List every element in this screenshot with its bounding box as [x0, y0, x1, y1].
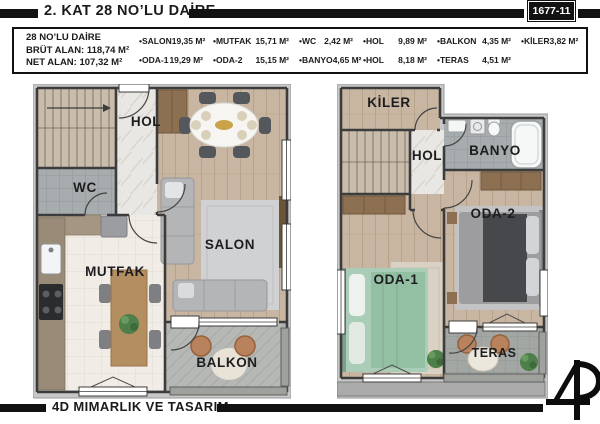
dining-chair	[199, 146, 216, 158]
room-area: 15,15 M²	[255, 55, 289, 65]
oda2-furniture	[447, 206, 544, 310]
room-area-entry: •ODA-119,29 M²	[134, 55, 208, 65]
cooktop	[39, 284, 63, 320]
balcony-chair	[235, 336, 255, 356]
room-name: •HOL	[363, 36, 384, 46]
pillow	[349, 274, 365, 316]
room-name: •ODA-1	[139, 55, 168, 65]
room-area-entry: •BALKON4,35 M²	[432, 36, 516, 46]
pillow	[349, 322, 365, 364]
unit-summary: 28 NO’LU DAİRE BRÜT ALAN: 118,74 M² NET …	[14, 29, 134, 72]
label-banyo: BANYO	[469, 143, 521, 158]
teras-rail-bottom	[444, 374, 544, 382]
room-area: 2,42 M²	[324, 36, 353, 46]
kitchen-chair	[99, 330, 111, 349]
room-name: •WC	[299, 36, 316, 46]
label-oda2: ODA-2	[470, 206, 515, 221]
room-area-entry: •MUTFAK15,71 M²	[208, 36, 294, 46]
fridge	[101, 216, 127, 237]
sheet-number-badge: 1677-11	[528, 1, 575, 21]
label-mutfak: MUTFAK	[85, 264, 145, 279]
label-kiler: KİLER	[367, 95, 411, 110]
room-area-entry: •HOL8,18 M²	[358, 55, 432, 65]
balcony-door-sill	[171, 316, 199, 328]
room-area: 15,71 M²	[255, 36, 289, 46]
room-area: 3,82 M²	[549, 36, 578, 46]
room-hol	[116, 88, 157, 215]
nightstand	[447, 212, 457, 224]
room-name: •HOL	[363, 55, 384, 65]
company-logo-4d	[544, 356, 600, 424]
room-area: 4,35 M²	[482, 36, 511, 46]
room-name: •SALON	[139, 36, 172, 46]
area-info-box: 28 NO’LU DAİRE BRÜT ALAN: 118,74 M² NET …	[12, 27, 588, 74]
gross-area: BRÜT ALAN: 118,74 M²	[26, 45, 134, 57]
label-hol: HOL	[412, 148, 442, 163]
dining-chair	[233, 146, 250, 158]
room-name: •KİLER	[521, 36, 549, 46]
room-area: 4,51 M²	[482, 55, 511, 65]
footer-bar-middle	[217, 404, 543, 412]
label-oda1: ODA-1	[373, 272, 418, 287]
pillow	[526, 258, 539, 296]
kitchen-chair	[149, 284, 161, 303]
room-area-entry: •ODA-215,15 M²	[208, 55, 294, 65]
sheet-number: 1677-11	[533, 5, 571, 17]
dining-chair	[233, 92, 250, 104]
unit-name: 28 NO’LU DAİRE	[26, 32, 134, 44]
pillow	[526, 216, 539, 254]
room-area-row-2: •ODA-119,29 M² •ODA-215,15 M² •BANYO4,65…	[134, 55, 580, 65]
room-area-entry: •BANYO4,65 M²	[294, 55, 358, 65]
toilet	[488, 122, 500, 136]
room-area-entry: •HOL9,89 M²	[358, 36, 432, 46]
bathroom-sink	[448, 120, 466, 132]
bed-blanket	[483, 214, 527, 302]
room-area-entry: •WC2,42 M²	[294, 36, 358, 46]
label-balkon: BALKON	[196, 355, 257, 370]
kitchen-chair	[99, 284, 111, 303]
balcony-rail-right	[281, 328, 289, 386]
dining-chair	[199, 92, 216, 104]
company-name: 4D MIMARLIK VE TASARIM	[52, 399, 229, 414]
room-area-row-1: •SALON19,35 M² •MUTFAK15,71 M² •WC2,42 M…	[134, 36, 580, 46]
room-area-entry: •KİLER3,82 M²	[516, 36, 580, 46]
room-area: 19,35 M²	[172, 36, 206, 46]
teras-door-sill	[449, 321, 477, 333]
room-area: 19,29 M²	[169, 55, 203, 65]
room-name: •ODA-2	[213, 55, 242, 65]
header-bar-right	[578, 9, 600, 18]
nightstand	[447, 292, 457, 304]
label-salon: SALON	[205, 237, 255, 252]
window-oda2-right	[540, 270, 548, 316]
floor-plan-left: HOL WC SALON MUTFAK BALKON	[33, 84, 291, 402]
room-area: 9,89 M²	[398, 36, 427, 46]
wardrobe-oda2	[481, 172, 541, 190]
wardrobe-oda1	[343, 196, 405, 214]
floor-plan-right: KİLER HOL BANYO ODA-2 ODA-1 TERAS	[337, 84, 548, 402]
room-name: •MUTFAK	[213, 36, 251, 46]
room-name: •TERAS	[437, 55, 469, 65]
label-wc: WC	[73, 180, 97, 195]
net-area: NET ALAN: 107,32 M²	[26, 57, 134, 69]
room-name: •BANYO	[299, 55, 333, 65]
label-teras: TERAS	[472, 346, 517, 360]
room-area-entry: •SALON19,35 M²	[134, 36, 208, 46]
balcony-rail-bottom	[170, 387, 287, 395]
room-area-entry-empty	[516, 55, 580, 65]
header-bar-middle	[189, 9, 524, 18]
dining-chair	[179, 117, 191, 134]
entrance-sill	[119, 84, 149, 92]
label-hol: HOL	[131, 114, 161, 129]
bottom-ledge	[337, 382, 545, 396]
dining-chair	[259, 117, 271, 134]
kitchen-chair	[149, 330, 161, 349]
footer-bar-left	[0, 404, 46, 412]
room-name: •BALKON	[437, 36, 476, 46]
washing-machine	[470, 119, 485, 134]
header-bar-left	[0, 9, 38, 18]
room-area: 8,18 M²	[398, 55, 427, 65]
room-area-entry: •TERAS4,51 M²	[432, 55, 516, 65]
room-area-list: •SALON19,35 M² •MUTFAK15,71 M² •WC2,42 M…	[134, 29, 586, 72]
